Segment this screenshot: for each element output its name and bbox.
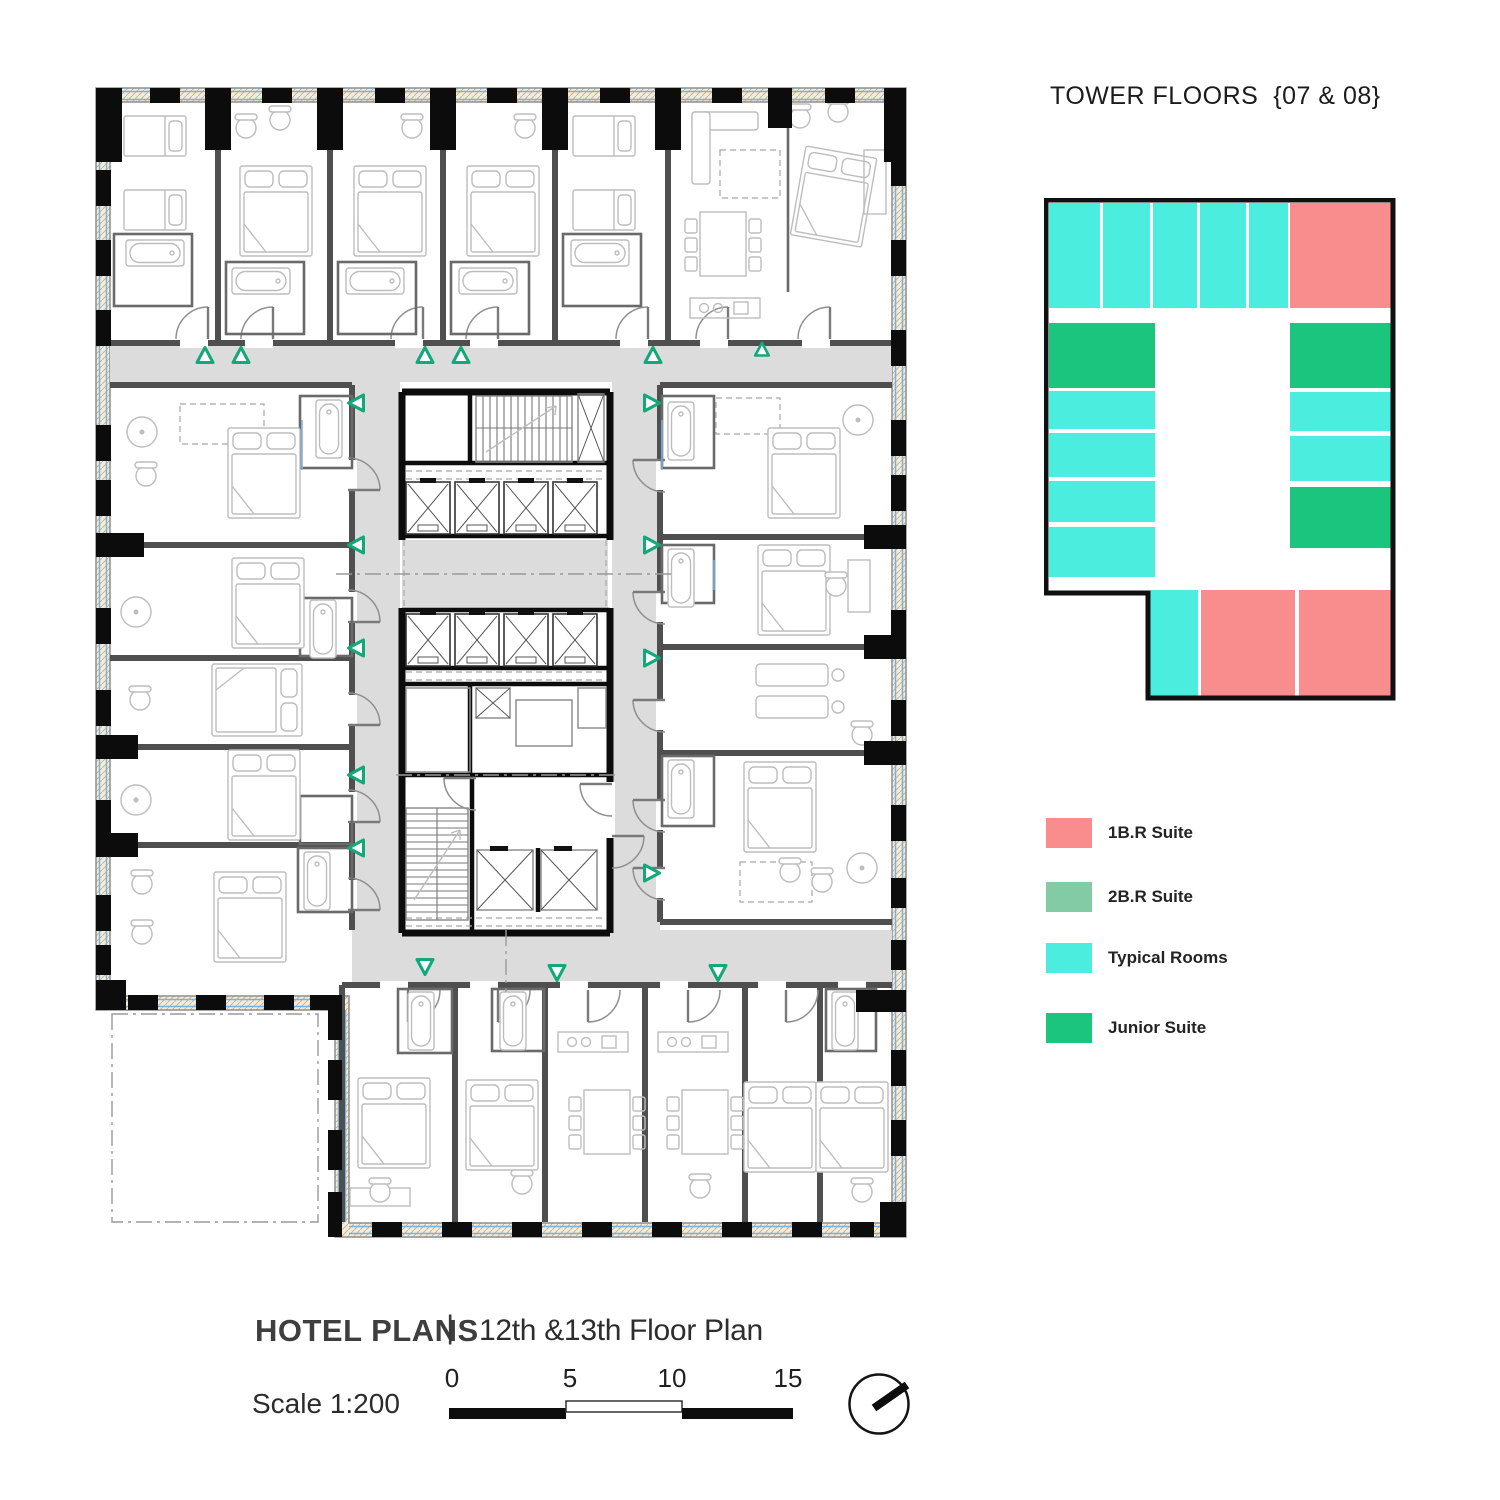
legend-swatch-typical [1046,943,1092,973]
key-plan-room-typical [1103,203,1150,308]
key-plan-title: TOWER FLOORS {07 & 08} [1050,82,1381,111]
key-plan-room-junior [1290,487,1391,548]
key-plan-diagram [1044,198,1396,701]
legend-label: Typical Rooms [1108,948,1228,968]
title-divider: | [446,1309,454,1346]
legend-item-typical-rooms: Typical Rooms [1046,943,1228,973]
key-plan-room-suite1br [1290,203,1391,308]
key-plan-room-typical [1049,527,1155,577]
key-plan-room-typical [1153,203,1197,308]
scale-tick-0: 0 [445,1363,459,1394]
key-plan-room-typical [1150,590,1198,696]
service-core [402,392,644,933]
legend-item-junior-suite: Junior Suite [1046,1013,1206,1043]
legend-swatch-1br [1046,818,1092,848]
legend-label: Junior Suite [1108,1018,1206,1038]
key-plan-room-typical [1049,203,1100,308]
scale-bar [449,1401,793,1419]
scale-label: Scale 1:200 [252,1388,400,1420]
legend-swatch-junior [1046,1013,1092,1043]
key-plan-room-junior [1049,323,1155,388]
key-plan-room-typical [1049,481,1155,522]
hotel-plan-sheet: TOWER FLOORS {07 & 08} 1B.R Suite 2B.R S… [0,0,1500,1500]
legend-label: 1B.R Suite [1108,823,1193,843]
scale-tick-15: 15 [774,1363,803,1394]
key-plan-room-typical [1049,391,1155,429]
legend-item-1br-suite: 1B.R Suite [1046,818,1193,848]
key-plan-room-typical [1290,392,1391,431]
terrace-void-outline [112,1014,318,1222]
north-arrow-icon [850,1375,909,1434]
scale-tick-5: 5 [563,1363,577,1394]
scale-tick-10: 10 [658,1363,687,1394]
key-plan-room-typical [1290,436,1391,481]
legend-item-2br-suite: 2B.R Suite [1046,882,1193,912]
key-plan-room-suite1br [1299,590,1391,696]
legend-swatch-2br [1046,882,1092,912]
key-plan-room-junior [1290,323,1391,388]
key-plan-room-typical [1049,433,1155,477]
key-plan-room-typical [1200,203,1246,308]
legend-label: 2B.R Suite [1108,887,1193,907]
sheet-subtitle: 12th &13th Floor Plan [479,1314,763,1348]
key-plan-room-typical [1249,203,1288,308]
key-plan-room-suite1br [1201,590,1295,696]
